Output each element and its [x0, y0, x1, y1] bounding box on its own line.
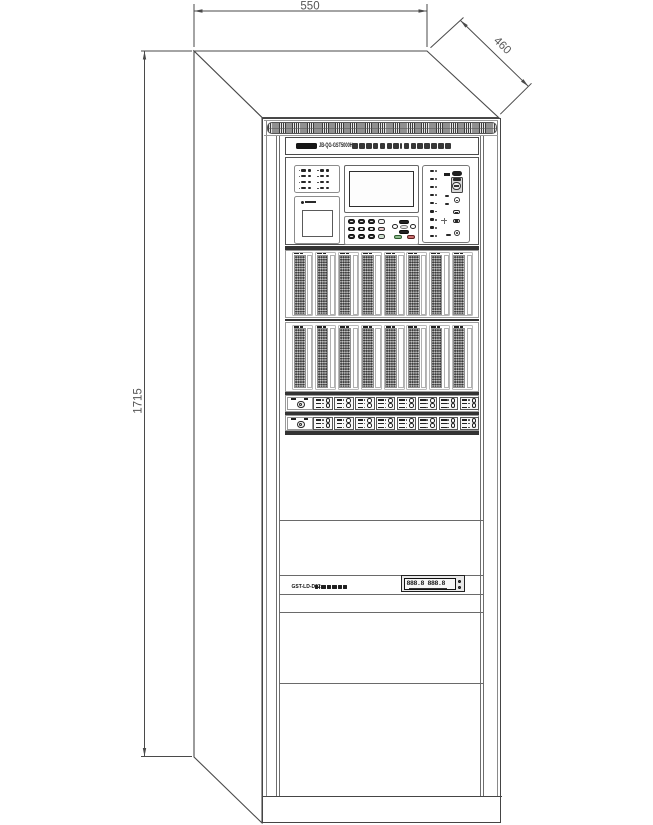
svg-text:550: 550: [300, 1, 319, 13]
svg-text:1715: 1715: [133, 388, 145, 414]
